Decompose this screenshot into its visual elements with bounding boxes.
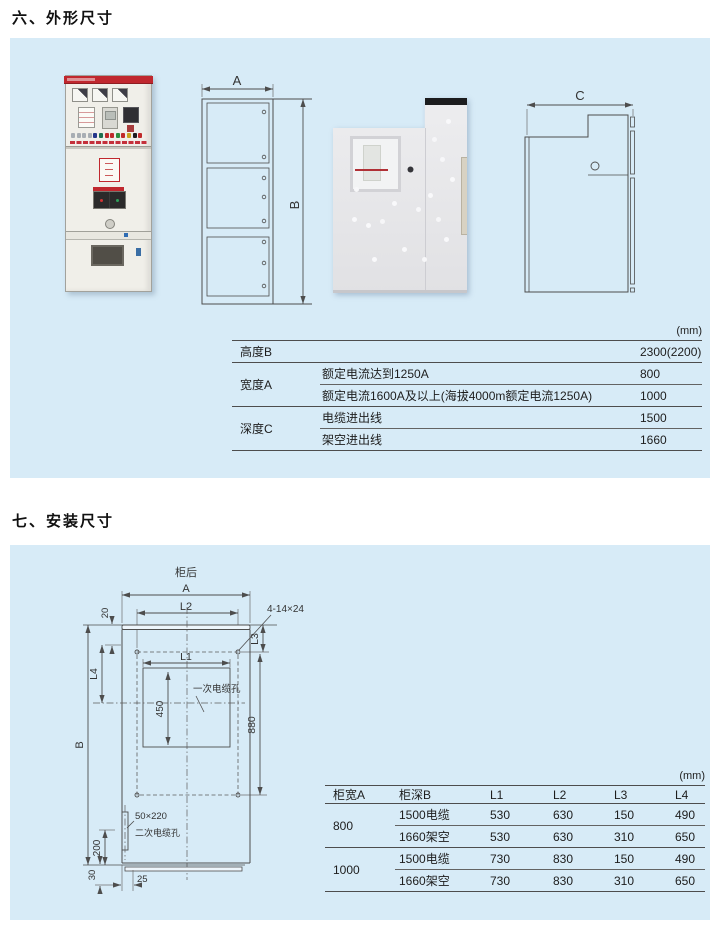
dim-L4-label: L4 — [88, 668, 100, 680]
cabinet-top-cap — [64, 76, 153, 84]
indicator-lamp — [88, 133, 92, 138]
table-cell: 490 — [668, 852, 705, 866]
indicator-lamp — [77, 133, 81, 138]
outline-dimensions-table: (mm) 高度B 2300(2200) 宽度A 额定电流达到1250A 800 … — [232, 325, 702, 451]
table-cell: 额定电流1600A及以上(海拔4000m额定电流1250A) — [320, 387, 630, 404]
breaker-window-right — [110, 192, 125, 208]
table-cell: 1660架空 — [395, 828, 480, 845]
meter-gauge — [92, 88, 108, 102]
primary-hole-label: 一次电缆孔 — [193, 683, 241, 695]
dimension-20 — [105, 616, 121, 654]
slot-size-label: 50×220 — [135, 811, 167, 822]
circuit-diagram-sign — [99, 158, 120, 182]
cabinet-back-label: 柜后 — [175, 566, 197, 579]
side-plate-photo — [333, 98, 467, 293]
dim-30-label: 30 — [87, 870, 98, 881]
column-header: 柜宽A — [325, 786, 395, 803]
dimension-30 — [95, 856, 117, 894]
table-row: 额定电流达到1250A 800 — [320, 363, 702, 384]
dim-B-label: B — [74, 741, 86, 748]
table-group: 800 1500电缆 530 630 150 490 1660架空 530 63… — [325, 804, 705, 847]
side-depth-label: C — [575, 88, 584, 103]
table-cell: 530 — [480, 830, 545, 844]
dim-A-label: A — [182, 583, 190, 595]
table-cell: 1660 — [630, 433, 702, 447]
breaker-windows — [93, 191, 126, 209]
table-cell: 1000 — [630, 389, 702, 403]
table-cell: 800 — [325, 804, 395, 847]
indicator-lamp — [99, 133, 103, 138]
table-row: 架空进出线 1660 — [320, 428, 702, 450]
table-body: 柜宽A 柜深B L1 L2 L3 L4 800 1500电缆 530 630 1… — [325, 785, 705, 892]
top-channel-bar — [122, 625, 250, 630]
table-cell: 额定电流达到1250A — [320, 365, 630, 382]
holes-note-label: 4-14×24 — [267, 604, 304, 615]
indicator-lamp — [105, 133, 109, 138]
column-header: L1 — [480, 788, 545, 802]
display-window — [123, 107, 139, 123]
plate-bottom-edge — [333, 290, 467, 293]
door-divider — [66, 146, 151, 149]
blue-label — [136, 248, 141, 256]
red-indicator — [127, 125, 134, 132]
table-cell: 490 — [668, 808, 705, 822]
section-title-outline: 六、外形尺寸 — [12, 7, 114, 28]
table-group: 宽度A 额定电流达到1250A 800 额定电流1600A及以上(海拔4000m… — [232, 362, 702, 406]
relay-screen — [105, 111, 116, 120]
table-group: 1000 1500电缆 730 830 150 490 1660架空 730 8… — [325, 847, 705, 891]
indicator-lamp — [121, 133, 125, 138]
side-rail-segments — [631, 117, 635, 292]
table-cell: 310 — [607, 874, 668, 888]
table-cell: 650 — [668, 874, 705, 888]
table-cell: 1660架空 — [395, 872, 480, 889]
column-header: L2 — [545, 788, 607, 802]
dimension-C — [527, 105, 633, 135]
primary-hole-leader — [196, 696, 204, 712]
door-knob — [105, 219, 115, 229]
dim-200-label: 200 — [92, 839, 103, 856]
mounting-holes — [135, 650, 240, 797]
window-red-bar — [355, 169, 388, 171]
indicator-lamp — [133, 133, 137, 138]
table-cell: 630 — [545, 830, 607, 844]
table-cell: 150 — [607, 808, 668, 822]
blue-marker — [124, 233, 128, 237]
dim-L1-label: L1 — [180, 651, 192, 663]
table-cell: 架空进出线 — [320, 431, 630, 448]
column-header: 柜深B — [395, 786, 480, 803]
meter-gauge — [112, 88, 128, 102]
plate-window-cutout — [350, 136, 401, 192]
install-dimensions-table: (mm) 柜宽A 柜深B L1 L2 L3 L4 800 1500电缆 530 … — [325, 770, 705, 892]
table-group: 高度B 2300(2200) — [232, 341, 702, 362]
table-cell: 1500 — [630, 411, 702, 425]
front-height-label: B — [287, 201, 302, 210]
dim-880-label: 880 — [246, 716, 258, 734]
table-cell: 730 — [480, 852, 545, 866]
table-header-row: 柜宽A 柜深B L1 L2 L3 L4 — [325, 786, 705, 804]
unit-label: (mm) — [232, 325, 702, 338]
table-cell: 530 — [480, 808, 545, 822]
table-cell: 630 — [545, 808, 607, 822]
side-plate — [333, 98, 467, 293]
bottom-channel-bar — [125, 867, 242, 871]
catalog-page: { "sections": { "outline_title": "六、外形尺寸… — [0, 0, 720, 925]
indicator-lamp — [82, 133, 86, 138]
table-row: 1500电缆 730 830 150 490 — [395, 848, 705, 869]
table-cell: 1500电缆 — [395, 806, 480, 823]
indicator-lamp — [93, 133, 97, 138]
protection-relay — [102, 107, 118, 129]
table-cell: 150 — [607, 852, 668, 866]
indicator-lamp — [110, 133, 114, 138]
table-cell: 830 — [545, 852, 607, 866]
mimic-diagram-plate — [78, 107, 95, 128]
indicator-lamp — [138, 133, 142, 138]
table-cell: 宽度A — [232, 363, 320, 406]
front-width-label: A — [233, 73, 242, 88]
column-header: L4 — [668, 788, 705, 802]
table-cell: 1500电缆 — [395, 850, 480, 867]
dim-25-label: 25 — [137, 874, 148, 885]
dim-L3-label: L3 — [249, 633, 261, 645]
secondary-hole-label: 二次电缆孔 — [135, 827, 180, 838]
section-title-install: 七、安装尺寸 — [12, 510, 114, 531]
meter-gauge — [72, 88, 88, 102]
table-row: 电缆进出线 1500 — [320, 407, 702, 428]
indicator-lamp-row — [71, 133, 142, 138]
table-cell: 830 — [545, 874, 607, 888]
table-cell: 310 — [607, 830, 668, 844]
table-cell: 1000 — [325, 848, 395, 891]
unit-label: (mm) — [325, 770, 705, 783]
cabinet-photo — [65, 75, 152, 292]
indicator-lamp — [71, 133, 75, 138]
lower-divider-strip — [66, 231, 151, 240]
plate-side-rail — [461, 157, 468, 235]
cabinet-model-label — [67, 78, 95, 82]
table-row: 1500电缆 530 630 150 490 — [395, 804, 705, 825]
table-cell: 电缆进出线 — [320, 409, 630, 426]
window-mechanism — [363, 145, 381, 181]
plate-seam — [425, 128, 426, 291]
door-hinge-holes — [262, 110, 266, 288]
mounting-hole-rectangle — [137, 652, 238, 795]
table-cell: 650 — [668, 830, 705, 844]
table-group: 深度C 电缆进出线 1500 架空进出线 1660 — [232, 406, 702, 450]
cabinet-side-outline — [525, 115, 628, 292]
table-cell: 深度C — [232, 407, 320, 450]
indicator-lamp — [127, 133, 131, 138]
table-cell: 800 — [630, 367, 702, 381]
plate-rivets — [333, 98, 336, 101]
breaker-window-left — [94, 192, 109, 208]
side-outline-drawing: C — [500, 60, 690, 320]
secondary-cable-slot — [122, 812, 128, 850]
nameplate-strip — [70, 141, 147, 145]
table-row: 1660架空 530 630 310 650 — [395, 825, 705, 847]
table-cell: 高度B — [232, 341, 320, 362]
lower-vent-window — [91, 245, 124, 266]
table-body: 高度B 2300(2200) 宽度A 额定电流达到1250A 800 额定电流1… — [232, 340, 702, 451]
front-outline-drawing: A B — [185, 60, 325, 320]
table-row: 2300(2200) — [320, 341, 702, 362]
indicator-lamp — [116, 133, 120, 138]
dim-L2-label: L2 — [180, 601, 192, 613]
column-header: L3 — [607, 788, 668, 802]
table-cell: 730 — [480, 874, 545, 888]
plate-top-bar — [425, 98, 467, 105]
table-row: 1660架空 730 830 310 650 — [395, 869, 705, 891]
dim-20-label: 20 — [100, 608, 111, 619]
table-cell: 2300(2200) — [630, 345, 702, 359]
installation-drawing: 柜后 A L2 20 L4 B L3 880 4-14×24 — [55, 555, 325, 925]
table-row: 额定电流1600A及以上(海拔4000m额定电流1250A) 1000 — [320, 384, 702, 406]
